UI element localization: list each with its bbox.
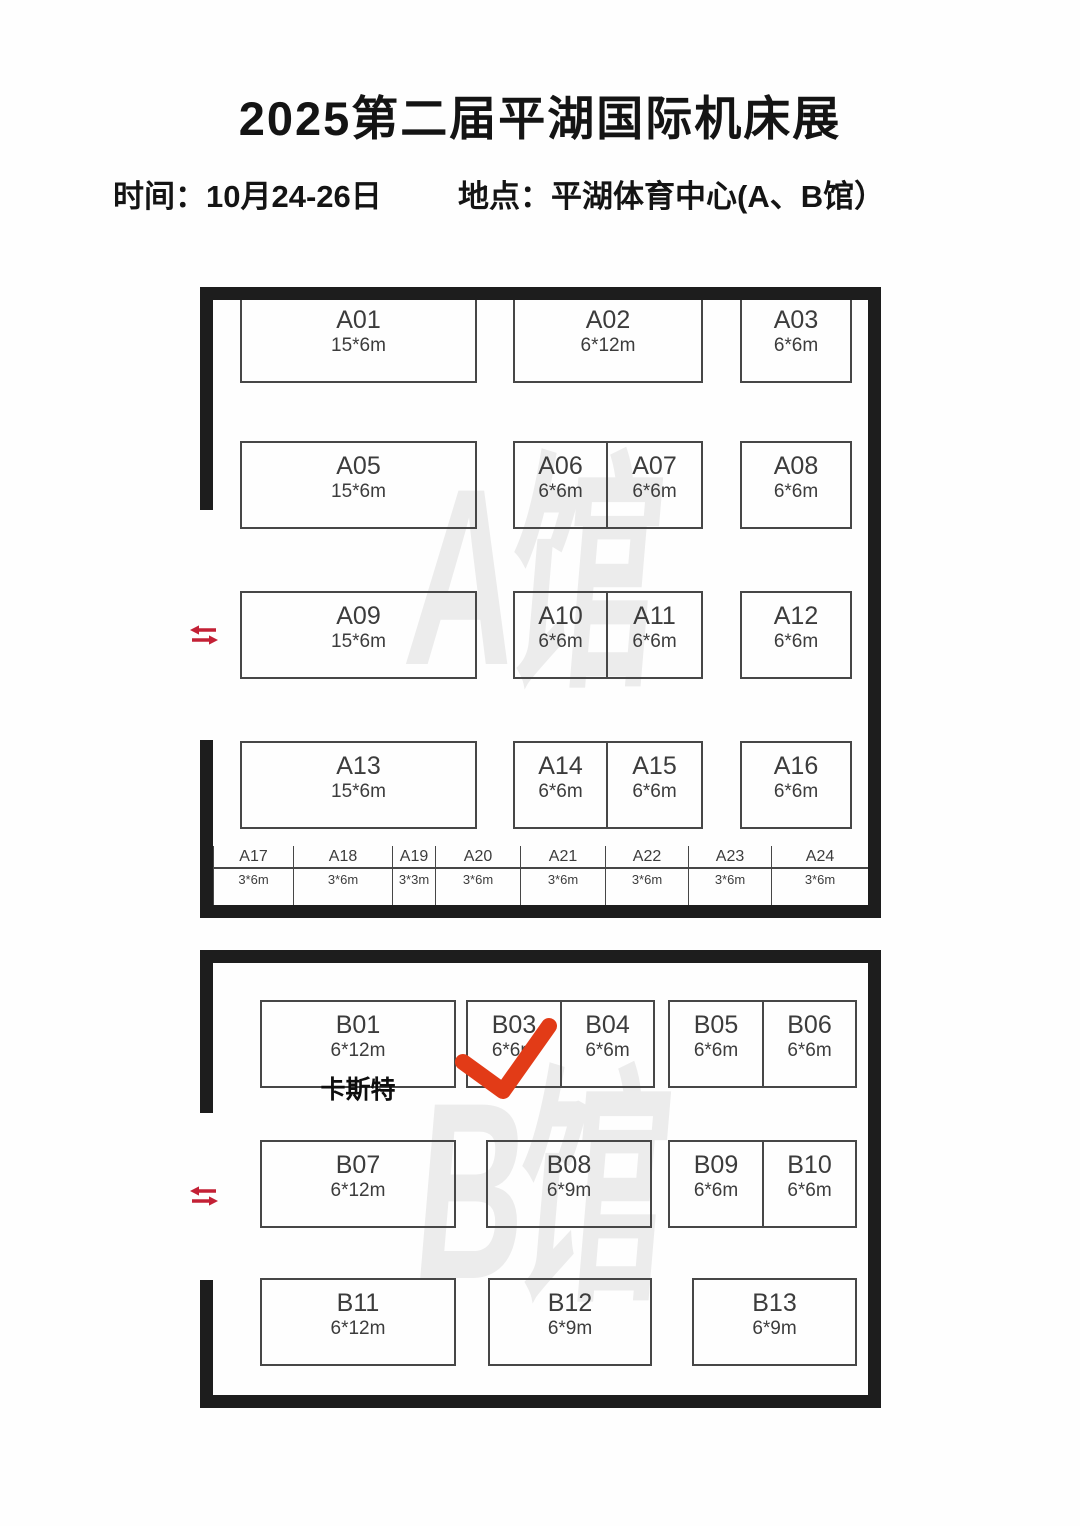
booth-a02: A026*12m	[513, 295, 703, 383]
booth-label: B01	[262, 1011, 454, 1039]
booth-b12: B126*9m	[488, 1278, 652, 1366]
booth-size-label: 15*6m	[242, 630, 475, 654]
booth-a03: A036*6m	[740, 295, 852, 383]
booth-a23: A233*6m	[688, 846, 771, 905]
booth-label: A08	[742, 452, 850, 480]
booth-size-label: 6*6m	[515, 630, 606, 654]
booth-label: A01	[242, 306, 475, 334]
booth-size-label: 3*6m	[772, 867, 868, 901]
hall-a-wall-left-lower	[200, 740, 213, 918]
booth-a24: A243*6m	[771, 846, 868, 905]
booth-size-label: 6*6m	[742, 480, 850, 504]
booth-label: A03	[742, 306, 850, 334]
booth-label: B08	[488, 1151, 650, 1179]
hall-a-entrance-arrows-icon	[189, 622, 219, 649]
booth-size-label: 6*6m	[562, 1039, 653, 1063]
booth-label: A20	[436, 846, 520, 867]
booth-label: B09	[670, 1151, 762, 1179]
booth-a01: A0115*6m	[240, 295, 477, 383]
booth-a10: A106*6m	[513, 591, 608, 679]
booth-b06: B066*6m	[762, 1000, 857, 1088]
event-time: 时间：10月24-26日	[113, 171, 382, 216]
booth-size-label: 6*6m	[670, 1039, 762, 1063]
booth-size-label: 6*6m	[670, 1179, 762, 1203]
booth-size-label: 6*9m	[488, 1179, 650, 1203]
booth-label: B03	[468, 1011, 560, 1039]
booth-size-label: 6*6m	[742, 780, 850, 804]
hall-a-wall-bottom	[200, 905, 881, 918]
booth-a22: A223*6m	[605, 846, 688, 905]
booth-label: A18	[294, 846, 392, 867]
booth-label: A15	[608, 752, 701, 780]
booth-size-label: 6*6m	[608, 630, 701, 654]
booth-b09: B096*6m	[668, 1140, 764, 1228]
booth-size-label: 6*6m	[515, 780, 606, 804]
hall-b-wall-top	[200, 950, 881, 963]
booth-b04: B046*6m	[560, 1000, 655, 1088]
booth-b10: B106*6m	[762, 1140, 857, 1228]
booth-size-label: 6*12m	[262, 1317, 454, 1341]
booth-size-label: 6*6m	[764, 1179, 855, 1203]
booth-a16: A166*6m	[740, 741, 852, 829]
booth-label: A14	[515, 752, 606, 780]
booth-size-label: 3*3m	[393, 867, 435, 901]
booth-b01: B016*12m卡斯特	[260, 1000, 456, 1088]
booth-a12: A126*6m	[740, 591, 852, 679]
booth-size-label: 6*6m	[515, 480, 606, 504]
booth-label: B05	[670, 1011, 762, 1039]
booth-size-label: 15*6m	[242, 480, 475, 504]
booth-label: A05	[242, 452, 475, 480]
booth-size-label: 15*6m	[242, 780, 475, 804]
booth-label: A12	[742, 602, 850, 630]
booth-label: A07	[608, 452, 701, 480]
event-location: 地点：平湖体育中心(A、B馆）	[458, 171, 885, 216]
booth-a06: A066*6m	[513, 441, 608, 529]
booth-size-label: 6*6m	[742, 630, 850, 654]
booth-label: A17	[214, 846, 293, 867]
booth-a20: A203*6m	[435, 846, 520, 905]
booth-a07: A076*6m	[606, 441, 703, 529]
booth-b08: B086*9m	[486, 1140, 652, 1228]
booth-a08: A086*6m	[740, 441, 852, 529]
booth-size-label: 6*12m	[515, 334, 701, 358]
booth-label: B12	[490, 1289, 650, 1317]
booth-label: B04	[562, 1011, 653, 1039]
booth-a18: A183*6m	[293, 846, 392, 905]
hall-a-wall-left-upper	[200, 287, 213, 510]
booth-b07: B076*12m	[260, 1140, 456, 1228]
booth-a21: A213*6m	[520, 846, 605, 905]
booth-size-label: 6*6m	[742, 334, 850, 358]
booth-b03: B036*6m	[466, 1000, 562, 1088]
booth-size-label: 6*6m	[468, 1039, 560, 1063]
booth-a13: A1315*6m	[240, 741, 477, 829]
booth-size-label: 6*12m	[262, 1039, 454, 1063]
booth-a19: A193*3m	[392, 846, 435, 905]
booth-a05: A0515*6m	[240, 441, 477, 529]
booth-a11: A116*6m	[606, 591, 703, 679]
booth-size-label: 6*6m	[608, 480, 701, 504]
hall-b-wall-bottom	[200, 1395, 881, 1408]
booth-size-label: 6*6m	[608, 780, 701, 804]
booth-size-label: 6*12m	[262, 1179, 454, 1203]
booth-label: B10	[764, 1151, 855, 1179]
booth-size-label: 3*6m	[294, 867, 392, 901]
booth-label: A19	[393, 846, 435, 867]
booth-a15: A156*6m	[606, 741, 703, 829]
booth-size-label: 3*6m	[689, 867, 771, 901]
booth-label: A23	[689, 846, 771, 867]
hall-a-wall-top	[200, 287, 881, 300]
booth-label: A09	[242, 602, 475, 630]
booth-size-label: 3*6m	[606, 867, 688, 901]
booth-label: B06	[764, 1011, 855, 1039]
page-title: 2025第二届平湖国际机床展	[0, 80, 1080, 149]
hall-b-wall-right	[868, 950, 881, 1408]
hall-b-wall-left-lower	[200, 1280, 213, 1408]
booth-size-label: 3*6m	[436, 867, 520, 901]
booth-size-label: 6*6m	[764, 1039, 855, 1063]
booth-label: A10	[515, 602, 606, 630]
booth-a09: A0915*6m	[240, 591, 477, 679]
booth-size-label: 6*9m	[694, 1317, 855, 1341]
booth-size-label: 3*6m	[521, 867, 605, 901]
booth-label: B11	[262, 1289, 454, 1317]
booth-label: A13	[242, 752, 475, 780]
hall-b-entrance-arrows-icon	[189, 1183, 219, 1210]
booth-label: B13	[694, 1289, 855, 1317]
hall-b-wall-left-upper	[200, 950, 213, 1113]
booth-exhibitor-label: 卡斯特	[262, 1070, 454, 1106]
booth-a14: A146*6m	[513, 741, 608, 829]
booth-a17: A173*6m	[213, 846, 293, 905]
booth-b11: B116*12m	[260, 1278, 456, 1366]
booth-label: A24	[772, 846, 868, 867]
booth-size-label: 3*6m	[214, 867, 293, 901]
booth-label: B07	[262, 1151, 454, 1179]
booth-label: A06	[515, 452, 606, 480]
hall-a-wall-right	[868, 287, 881, 918]
booth-label: A11	[608, 602, 701, 630]
booth-label: A21	[521, 846, 605, 867]
booth-b05: B056*6m	[668, 1000, 764, 1088]
floor-plan-poster: 2025第二届平湖国际机床展 时间：10月24-26日 地点：平湖体育中心(A、…	[0, 0, 1080, 1526]
booth-label: A16	[742, 752, 850, 780]
booth-size-label: 15*6m	[242, 334, 475, 358]
booth-size-label: 6*9m	[490, 1317, 650, 1341]
booth-label: A22	[606, 846, 688, 867]
booth-label: A02	[515, 306, 701, 334]
booth-b13: B136*9m	[692, 1278, 857, 1366]
